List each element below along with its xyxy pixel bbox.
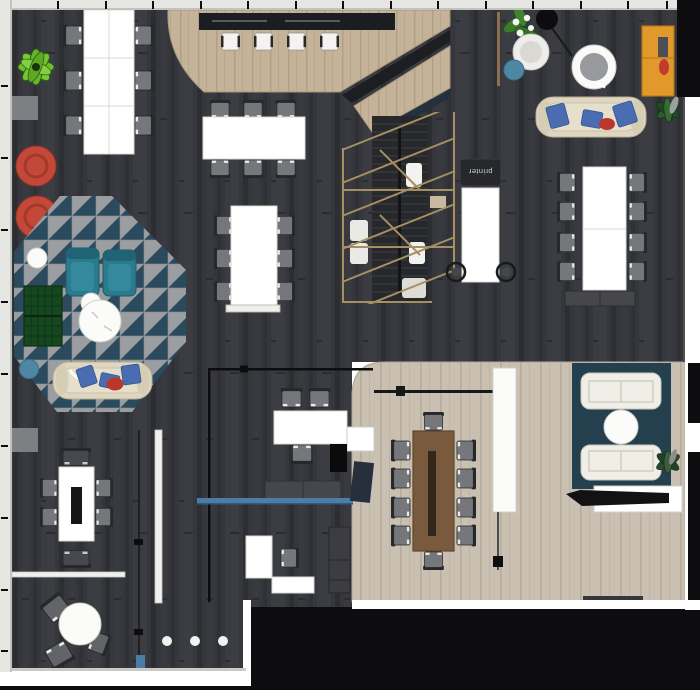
chair (557, 172, 575, 193)
lounge-sofa-top (581, 373, 661, 409)
stair-landing-step (430, 196, 446, 208)
cream-sofa-left (53, 362, 152, 399)
chair (210, 100, 231, 118)
chair (277, 215, 295, 236)
floor-plan-svg: printer (0, 0, 700, 690)
desk-top (246, 536, 272, 578)
round-coffee-table-large (79, 300, 121, 342)
chair (277, 248, 295, 269)
glass-partition-line (138, 430, 140, 662)
chair (214, 215, 232, 236)
teal-armchair (103, 250, 136, 296)
white-ottoman (27, 248, 47, 268)
chair (135, 25, 154, 47)
partition-line-v (208, 368, 211, 602)
white-bar-stool (221, 33, 240, 50)
table-top (203, 117, 305, 159)
chair (40, 507, 57, 527)
chair (40, 478, 57, 498)
chair (391, 525, 410, 547)
chair (214, 248, 232, 269)
glass-partition-teal (197, 498, 353, 505)
chair (276, 100, 297, 118)
right-wall-block (688, 363, 700, 423)
white-wall-segment (155, 430, 162, 603)
desk-top (274, 411, 347, 444)
bench (226, 305, 280, 312)
chair (423, 552, 444, 570)
floor-plan-stage: printer (0, 0, 700, 690)
chair (281, 388, 303, 407)
chair (457, 468, 476, 490)
chair (63, 115, 82, 137)
chair (61, 551, 91, 569)
chair (457, 497, 476, 519)
bar-counter-detail (212, 20, 267, 22)
stair-landing-step (350, 220, 368, 241)
cream-sofa-top (536, 97, 646, 137)
teal-ottoman (20, 360, 39, 379)
right-wall-black (677, 0, 700, 97)
lounge-sofa-bottom (581, 445, 661, 480)
wall-box (493, 556, 503, 567)
chair (243, 100, 264, 118)
standing-table-6 (214, 206, 295, 312)
pillow-red (599, 118, 615, 130)
door-handle (134, 629, 143, 635)
white-bar-stool (320, 33, 339, 50)
chair (391, 440, 410, 462)
beanbag (350, 461, 374, 503)
stair-stringer (398, 126, 401, 294)
table-cable-tray (428, 451, 436, 536)
teal-armchair (66, 248, 99, 296)
floor-mat (12, 96, 38, 120)
chair (277, 281, 295, 302)
bar-counter-detail (285, 20, 340, 22)
chair (276, 160, 297, 178)
printer-label: printer (468, 167, 492, 176)
chair (61, 448, 91, 466)
chair (309, 388, 331, 407)
door-handle (134, 539, 143, 545)
door-leaf (347, 427, 374, 451)
floor-light (162, 636, 172, 646)
printer-counter (462, 188, 499, 282)
cable-slot (71, 487, 82, 524)
round-side-table (572, 45, 616, 89)
wall-strip (352, 600, 686, 609)
chair (391, 468, 410, 490)
right-wall-white (685, 97, 700, 362)
green-plaid-sofa (24, 286, 62, 346)
chair (557, 201, 575, 222)
chair (96, 478, 113, 498)
right-wall-block (688, 452, 700, 600)
pillow-red (107, 378, 124, 391)
stair-landing-step (402, 278, 426, 298)
chair (457, 440, 476, 462)
orange-cabinet (642, 26, 674, 96)
left-wall-line (10, 0, 12, 672)
round-table (59, 603, 101, 645)
chair (96, 507, 113, 527)
plant-top-left (18, 49, 54, 85)
room-wall-line (374, 390, 496, 393)
lounge-rug-area (572, 363, 682, 489)
white-bar-stool (254, 33, 273, 50)
wall-box (396, 386, 405, 396)
workbench-table-6 (63, 10, 154, 154)
partition-line-h (208, 368, 373, 371)
chair (63, 25, 82, 47)
chair (243, 160, 264, 178)
chair (210, 160, 231, 178)
table-top (231, 206, 277, 307)
partition-junction (240, 366, 248, 373)
meeting-table-6 (203, 100, 305, 178)
chair (423, 412, 444, 430)
teal-ottoman (504, 60, 524, 80)
chair (629, 232, 647, 253)
floor-light (218, 636, 228, 646)
chair (457, 525, 476, 547)
chair (557, 261, 575, 282)
black-cabinet (330, 444, 347, 472)
chair (135, 115, 154, 137)
white-pillar (493, 368, 516, 512)
white-wall-segment (12, 572, 125, 577)
lounge-coffee-table (604, 410, 638, 444)
right-wall-line (683, 97, 685, 362)
chair (629, 172, 647, 193)
desk-return (272, 577, 314, 593)
chair (629, 201, 647, 222)
chair (214, 281, 232, 302)
chair (63, 70, 82, 92)
chair (291, 445, 313, 464)
chair (391, 497, 410, 519)
floor-light (190, 636, 200, 646)
floor-mat (12, 428, 38, 452)
chair (629, 261, 647, 282)
white-bar-stool (287, 33, 306, 50)
pillow-blue (121, 364, 141, 385)
exterior-void (250, 607, 686, 690)
chair (281, 548, 299, 569)
right-wall-black-bottom (683, 610, 700, 690)
chair (557, 232, 575, 253)
chair (135, 70, 154, 92)
coat-rack (497, 12, 500, 86)
red-ottoman (16, 146, 56, 186)
